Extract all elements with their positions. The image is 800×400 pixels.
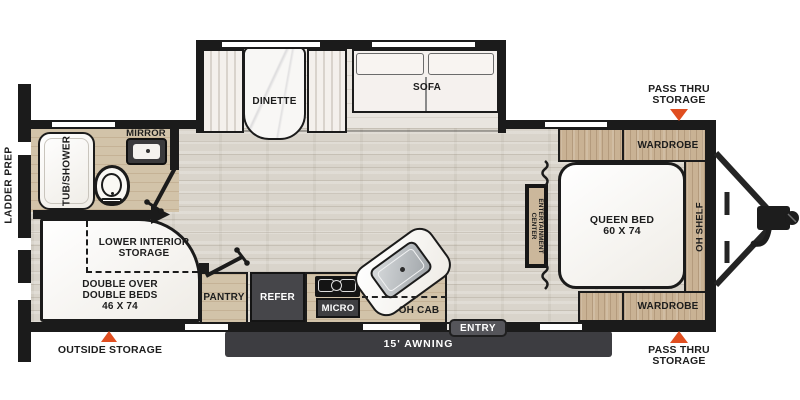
oh-cab-label: OH CAB	[391, 305, 447, 316]
micro-label: MICRO	[322, 303, 355, 314]
queen-bed: QUEEN BED 60 X 74	[558, 162, 686, 289]
refer-label: REFER	[260, 292, 295, 303]
window	[372, 42, 475, 47]
window	[540, 324, 582, 330]
ladder-prep-container: LADDER PREP	[2, 137, 16, 233]
lower-interior-storage-label: LOWER INTERIOR STORAGE	[88, 237, 200, 259]
hitch-ball-icon	[785, 211, 799, 225]
rear-window	[18, 283, 31, 300]
sofa-back-cushion	[356, 53, 424, 75]
entertainment-center: ENTERTAINMENT CENTER	[525, 184, 548, 268]
pass-thru-bottom-marker-icon	[670, 331, 688, 343]
mirror-label: MIRROR	[124, 128, 168, 139]
window	[222, 42, 320, 47]
window	[52, 122, 115, 127]
bathroom-door-wall	[170, 128, 179, 170]
sink-faucet-dot	[146, 149, 150, 153]
awning-bar: 15' AWNING	[225, 331, 612, 357]
double-beds-label: DOUBLE OVER DOUBLE BEDS 46 X 74	[58, 279, 182, 312]
window	[185, 324, 228, 330]
bedside-cabinet-bottom	[578, 291, 624, 322]
dinette-table: DINETTE	[243, 46, 306, 140]
dinette-bench-right	[307, 49, 347, 133]
entertainment-label: ENTERTAINMENT CENTER	[530, 186, 544, 266]
pantry-label: PANTRY	[198, 292, 250, 303]
pass-thru-storage-bottom-label: PASS THRU STORAGE	[629, 345, 729, 367]
front-wall	[705, 120, 716, 332]
tub-shower-label: TUB/SHOWER	[61, 136, 72, 206]
rear-window	[18, 142, 31, 155]
outside-storage-label: OUTSIDE STORAGE	[30, 344, 190, 356]
slideout-left-wall	[196, 40, 204, 133]
refrigerator: REFER	[250, 272, 305, 322]
dinette-label: DINETTE	[245, 96, 304, 107]
oh-cab-dashed-line	[362, 296, 447, 298]
bathroom-sink	[126, 138, 167, 165]
outside-storage-marker-icon	[101, 331, 117, 342]
queen-bed-label: QUEEN BED 60 X 74	[561, 215, 683, 237]
wardrobe-top: WARDROBE	[622, 128, 714, 162]
rear-window	[18, 238, 31, 250]
window	[363, 324, 420, 330]
tub-shower: TUB/SHOWER	[38, 132, 95, 210]
wardrobe-bottom-label: WARDROBE	[637, 301, 698, 312]
microwave: MICRO	[316, 298, 360, 318]
sofa-label: SOFA	[397, 82, 457, 93]
window	[545, 122, 607, 127]
wardrobe-top-label: WARDROBE	[637, 140, 698, 151]
jack-crank-icon	[755, 230, 769, 244]
dinette-bench-left	[202, 49, 244, 133]
top-wall-right	[498, 120, 716, 129]
wardrobe-bottom: WARDROBE	[622, 291, 714, 322]
entry-label: ENTRY	[460, 323, 496, 334]
ladder-prep-label: LADDER PREP	[4, 146, 15, 223]
pass-thru-storage-top-label: PASS THRU STORAGE	[629, 84, 729, 106]
hitch-frame-icon	[716, 153, 799, 285]
sofa: SOFA	[352, 49, 499, 113]
bedside-cabinet-top	[558, 128, 624, 162]
toilet	[94, 165, 130, 206]
slideout-right-wall	[498, 40, 506, 133]
entry-tag: ENTRY	[449, 319, 507, 337]
stove-cooktop	[315, 276, 360, 297]
pass-thru-top-marker-icon	[670, 109, 688, 121]
oh-shelf-label: OH SHELF	[694, 202, 705, 252]
floorplan-canvas: 15' AWNING TUB/SHOWER MIRROR LOWER INTER…	[0, 0, 800, 400]
sofa-back-cushion	[428, 53, 494, 75]
awning-label: 15' AWNING	[384, 338, 454, 350]
